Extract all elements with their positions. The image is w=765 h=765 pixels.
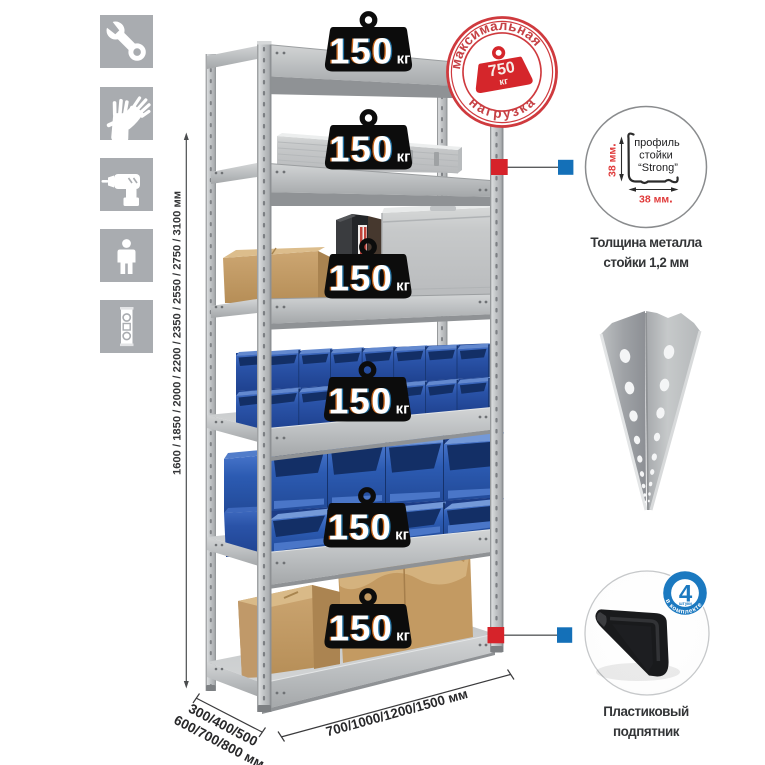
- svg-text:“Strong”: “Strong”: [638, 162, 678, 174]
- svg-text:профиль: профиль: [634, 137, 680, 149]
- svg-text:стойки 1,2 мм: стойки 1,2 мм: [603, 255, 688, 270]
- svg-text:38 мм.: 38 мм.: [639, 191, 673, 206]
- svg-text:подпятник: подпятник: [613, 724, 680, 739]
- svg-text:Толщина металла: Толщина металла: [590, 235, 702, 250]
- svg-text:стойки: стойки: [639, 150, 673, 162]
- svg-text:штуки: штуки: [679, 601, 692, 606]
- svg-text:Пластиковый: Пластиковый: [603, 704, 689, 719]
- svg-text:1600 / 1850 / 2000 / 2200 / 23: 1600 / 1850 / 2000 / 2200 / 2350 / 2550 …: [172, 191, 184, 475]
- svg-text:38 мм.: 38 мм.: [604, 143, 619, 177]
